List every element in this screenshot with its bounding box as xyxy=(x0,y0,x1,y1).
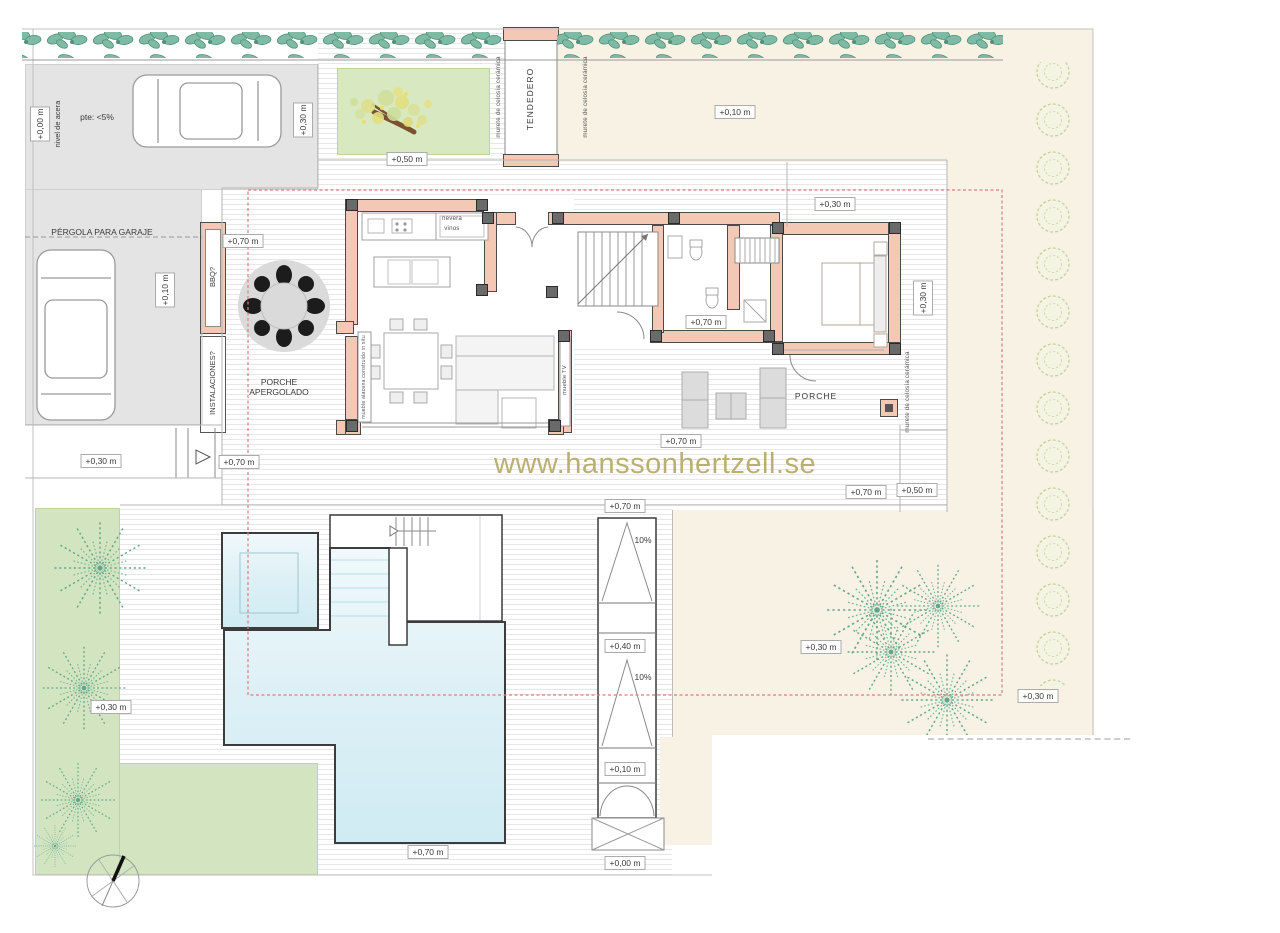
level-label: +0,30 m xyxy=(91,700,132,714)
sidewalk-note: nivel de acera xyxy=(53,101,63,148)
ramp-slope-label: 10% xyxy=(634,535,651,545)
level-label: +0,70 m xyxy=(408,845,449,859)
level-label: +0,10 m xyxy=(605,762,646,776)
entrance-walk xyxy=(25,425,222,478)
mueble-alacena-note: mueble alacena construido in situ xyxy=(359,335,369,419)
tendedero-title: TENDEDERO xyxy=(525,68,535,130)
wall-bath-divider-a xyxy=(652,225,664,333)
level-label: +0,40 m xyxy=(605,639,646,653)
wall-west-jog1 xyxy=(336,321,354,334)
level-label: +0,10 m xyxy=(715,105,756,119)
level-label: +0,30 m xyxy=(801,640,842,654)
level-label: +0,70 m xyxy=(223,234,264,248)
level-label: +0,00 m xyxy=(605,856,646,870)
wall-bedroom-west xyxy=(770,225,783,342)
pillar xyxy=(558,330,570,342)
site-plan: +0,00 m nivel de acera pte: <5% +0,30 m … xyxy=(0,0,1280,933)
level-label: +0,70 m xyxy=(686,315,727,329)
level-label: +0,10 m xyxy=(155,273,175,308)
pergola-title: PÉRGOLA PARA GARAJE xyxy=(51,227,152,237)
murete-note: murete de celosía cerámica xyxy=(494,56,504,137)
pillar xyxy=(346,420,358,432)
porch-pillar-core xyxy=(885,404,893,412)
level-label: +0,70 m xyxy=(846,485,887,499)
pillar xyxy=(482,212,494,224)
murete-note: murete de celosía cerámica xyxy=(581,56,591,137)
nevera-vinos-note: nevera vinos xyxy=(442,214,462,234)
ramp-slope-label: 10% xyxy=(634,672,651,682)
pillar xyxy=(549,420,561,432)
garden-right-strip xyxy=(947,162,1093,510)
wall-bedroom-north xyxy=(772,222,901,235)
room-bedroom xyxy=(770,222,901,355)
pillar xyxy=(889,343,901,355)
porch-pergola-label: PORCHE APERGOLADO xyxy=(249,377,309,397)
lawn-bottom-left xyxy=(119,763,318,875)
wall-bedroom-south xyxy=(772,342,901,355)
wall-hall-south xyxy=(650,330,774,343)
tendedero-wall-top xyxy=(503,27,559,41)
wall-bedroom-east xyxy=(888,222,901,355)
level-label: +0,70 m xyxy=(219,455,260,469)
wall-kitchen-divider xyxy=(484,212,497,292)
pergola-garage-area xyxy=(25,190,202,425)
garden-patch-tree xyxy=(337,68,490,155)
level-label: +0,30 m xyxy=(1018,689,1059,703)
pillar xyxy=(668,212,680,224)
wall-west-upper xyxy=(345,199,358,325)
pillar xyxy=(650,330,662,342)
pillar xyxy=(772,222,784,234)
porch-label: PORCHE xyxy=(795,391,837,401)
garden-sliver xyxy=(660,737,712,845)
watermark: www.hanssonhertzell.se xyxy=(494,448,816,481)
murete-note: murete de celosía cerámica xyxy=(903,351,913,432)
level-label: +0,30 m xyxy=(293,103,313,138)
pillar xyxy=(763,330,775,342)
pillar xyxy=(772,343,784,355)
blank-cover xyxy=(712,735,1152,887)
driveway-area xyxy=(25,64,318,190)
level-label: +0,70 m xyxy=(661,434,702,448)
instalaciones-label: INSTALACIONES? xyxy=(208,351,218,415)
garden-top-right xyxy=(557,29,1093,162)
pillar xyxy=(476,284,488,296)
wall-hall-north-b xyxy=(548,212,780,225)
level-label: +0,70 m xyxy=(605,499,646,513)
pillar xyxy=(346,199,358,211)
wall-bath-divider-b xyxy=(727,225,740,310)
level-label: +0,30 m xyxy=(913,281,933,316)
pillar xyxy=(546,286,558,298)
level-label: +0,50 m xyxy=(897,483,938,497)
level-label: +0,30 m xyxy=(81,454,122,468)
cover-edge-dashes xyxy=(928,738,1130,740)
pillar xyxy=(476,199,488,211)
pillar xyxy=(889,222,901,234)
level-label: +0,50 m xyxy=(387,152,428,166)
bbq-label: BBQ? xyxy=(208,267,218,287)
level-label: +0,00 m xyxy=(30,107,50,142)
wall-kitchen-north xyxy=(352,199,484,212)
pillar xyxy=(552,212,564,224)
level-label: +0,30 m xyxy=(815,197,856,211)
lawn-left-strip xyxy=(35,508,120,875)
slope-note: pte: <5% xyxy=(80,112,114,122)
mueble-tv-note: mueble TV xyxy=(560,365,570,395)
tendedero-wall-bottom xyxy=(503,154,559,167)
